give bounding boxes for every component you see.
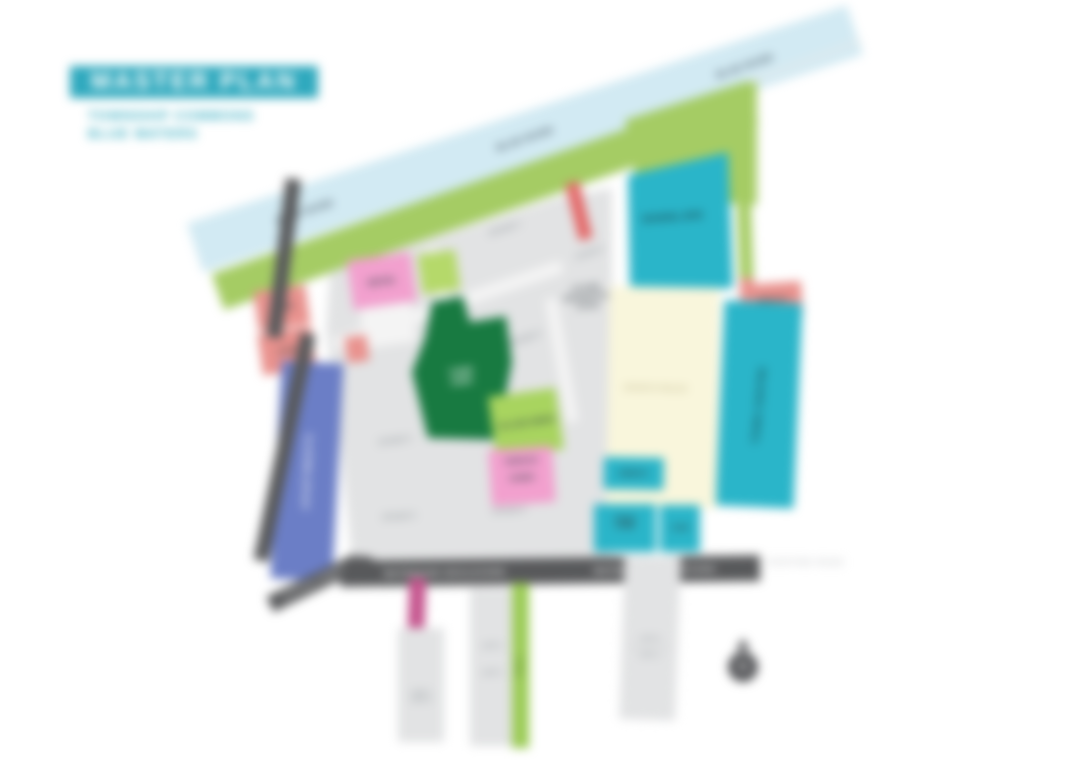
river-label: BLUE RIVER	[495, 125, 555, 153]
parcel-homes-label: HOMES	[490, 473, 554, 484]
lot-label: LOT 1	[621, 651, 677, 660]
parcel-childcare-label-2: CARE	[594, 523, 656, 530]
parcel-town-centre: TOWN CENTRE	[716, 300, 803, 508]
lot-label: LOT 5	[622, 635, 678, 644]
trail-strip-green: TRAIL	[512, 583, 529, 748]
parcel-apartments-label: APARTMENTS	[300, 432, 314, 509]
parcel-childcare: CHILD CARE	[594, 504, 656, 552]
parcel-terrace-label: TERRACE	[489, 456, 553, 467]
parcel-amenity-label: AMENITY	[618, 470, 650, 478]
parcel-white-block	[359, 302, 416, 349]
parcel-cafe-label: CAFE	[277, 346, 297, 356]
lot-label: LOT 1	[398, 690, 444, 697]
parcel-childcare-label-1: CHILD	[594, 516, 656, 523]
page-title: MASTER PLAN	[70, 66, 318, 98]
parcel-town-park-label: TOWN PARK	[437, 364, 486, 390]
parcel-village-green-label: VILLAGE GREEN	[497, 416, 555, 431]
parcel-town-centre-label: TOWN CENTRE	[750, 365, 767, 443]
compass-n-label: N	[739, 661, 747, 673]
blurred-plan-canvas: MASTER PLAN TOWNSHIP COMMONS BLUE WATERS…	[0, 0, 1068, 761]
parcel-school-label: SCHOOL SITE	[642, 210, 703, 224]
lot-south-east: LOT 5 LOT 1	[619, 555, 681, 721]
parcel-green-small	[417, 250, 460, 295]
subtitle-line-1: TOWNSHIP COMMONS	[88, 108, 255, 123]
lot-south-west: LOT 1 LOT 2	[398, 628, 444, 742]
lot-label: LOT 4	[470, 670, 514, 677]
future-residential-label: FUTURE RESIDENTIAL STAGE	[561, 281, 614, 313]
trail-label: TRAIL	[517, 654, 524, 677]
subtitle-line-2: BLUE WATERS	[88, 126, 198, 141]
parcel-gym-label: GYM	[672, 525, 688, 532]
parcel-amenity: AMENITY	[603, 457, 664, 490]
road-boulevard-label-west: WATERSIDE BOULEVARD	[384, 567, 506, 578]
offsite-road-label: EXISTING ROAD	[768, 558, 844, 567]
parcel-sports-fields: SPORTS FIELDS AMENITY	[606, 286, 720, 509]
road-boulevard: WATERSIDE BOULEVARD WATERSIDE BOULEVARD	[340, 555, 760, 587]
lot-label: LOT 2	[398, 697, 444, 704]
north-arrow-icon: N	[724, 638, 762, 696]
lot-south-mid: LOT 3 LOT 4	[470, 588, 514, 746]
master-plan-page: MASTER PLAN TOWNSHIP COMMONS BLUE WATERS…	[0, 0, 1068, 761]
parcel-sports-label: SPORTS FIELDS	[623, 384, 687, 394]
parcel-terrace-homes: TERRACE HOMES	[488, 446, 556, 506]
lot-label: LOT 3	[470, 643, 514, 650]
parcel-retail-label: RETAIL	[367, 275, 396, 288]
parcel-gym: GYM	[660, 505, 700, 552]
parcel-salmon-sliver	[344, 335, 369, 364]
page-title-text: MASTER PLAN	[91, 68, 297, 96]
